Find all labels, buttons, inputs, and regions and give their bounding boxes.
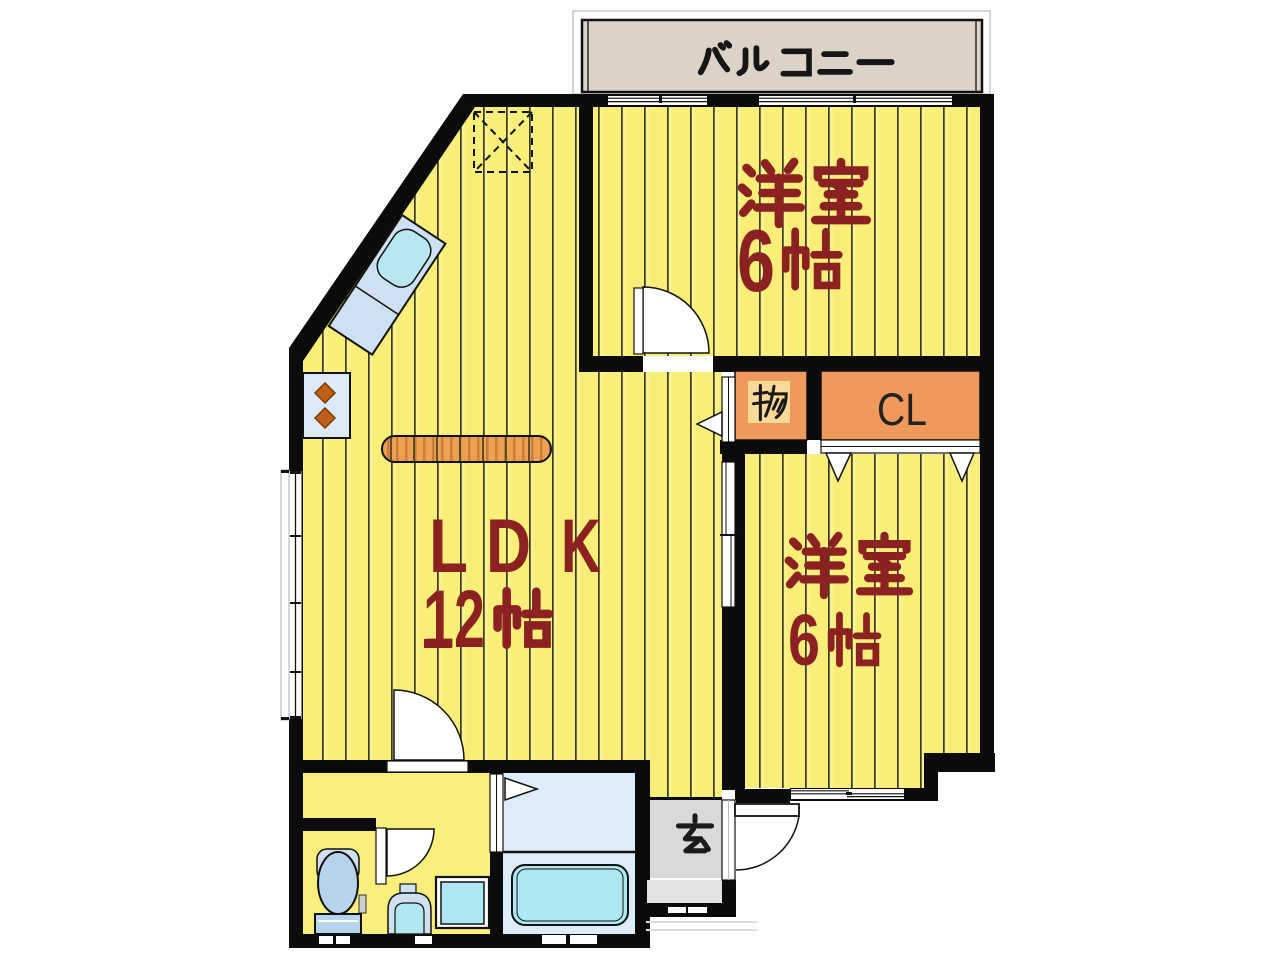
svg-text:K: K: [561, 504, 601, 589]
svg-text:6: 6: [737, 211, 775, 310]
svg-text:CL: CL: [877, 384, 927, 435]
svg-text:6: 6: [788, 601, 820, 681]
svg-text:12: 12: [423, 574, 485, 665]
svg-text:D: D: [486, 504, 531, 589]
